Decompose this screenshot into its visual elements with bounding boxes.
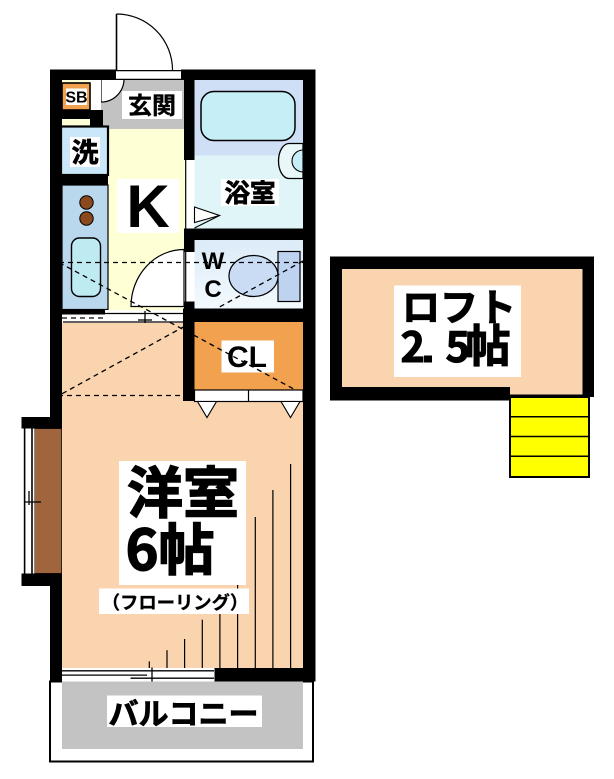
svg-text:C: C bbox=[204, 276, 221, 303]
svg-text:K: K bbox=[126, 173, 169, 240]
svg-text:W: W bbox=[202, 248, 225, 275]
svg-text:SB: SB bbox=[65, 90, 87, 107]
svg-text:CL: CL bbox=[227, 341, 267, 374]
